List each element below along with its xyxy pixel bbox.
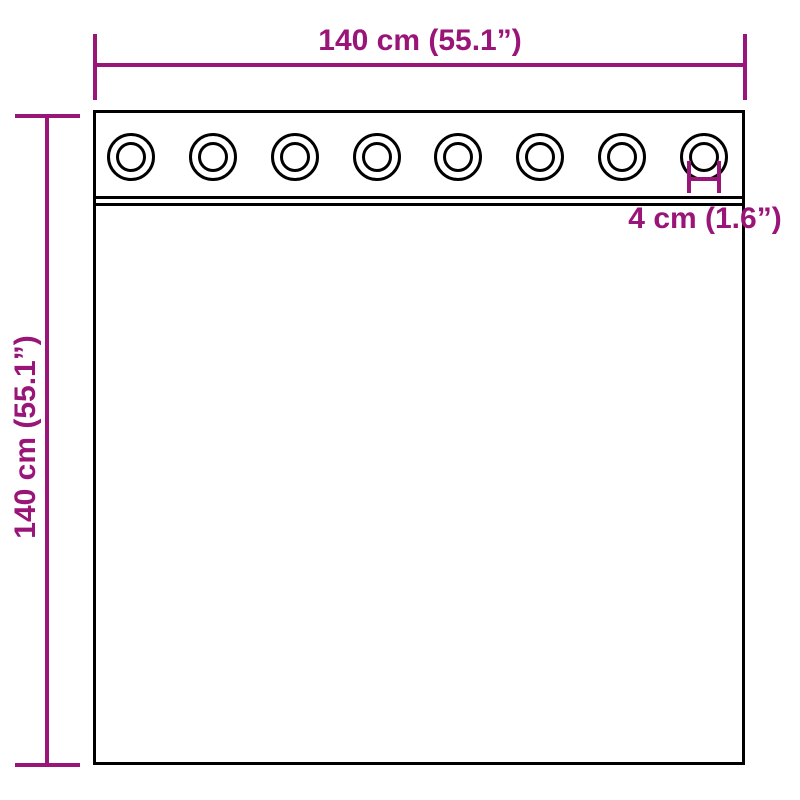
width-dimension-tick-right [743,34,747,100]
header-seam-line-top [96,196,742,199]
grommet-hole [443,142,473,172]
grommet-hole [280,142,310,172]
width-dimension-line [93,63,747,67]
grommet-ring-icon [434,133,482,181]
grommet-ring-icon [598,133,646,181]
grommet-ring-icon [516,133,564,181]
grommet-hole [362,142,392,172]
grommet-hole [116,142,146,172]
grommet-ring-icon [189,133,237,181]
grommet-dimension-line [687,177,721,181]
grommet-hole [198,142,228,172]
grommet-hole [607,142,637,172]
height-dimension-tick-bottom [15,763,80,767]
width-dimension-tick-left [93,34,97,100]
curtain-dimension-diagram: 140 cm (55.1”) 140 cm (55.1”) 4 cm (1.6”… [0,0,800,800]
grommet-dimension-label: 4 cm (1.6”) [628,202,781,237]
height-dimension-tick-top [15,114,80,118]
grommet-hole [689,142,719,172]
grommet-ring-icon [107,133,155,181]
grommet-ring-icon [353,133,401,181]
width-dimension-label: 140 cm (55.1”) [318,24,521,59]
grommet-ring-icon [271,133,319,181]
height-dimension-label: 140 cm (55.1”) [9,335,44,538]
grommet-row [107,133,728,181]
grommet-hole [525,142,555,172]
height-dimension-line [45,114,49,767]
